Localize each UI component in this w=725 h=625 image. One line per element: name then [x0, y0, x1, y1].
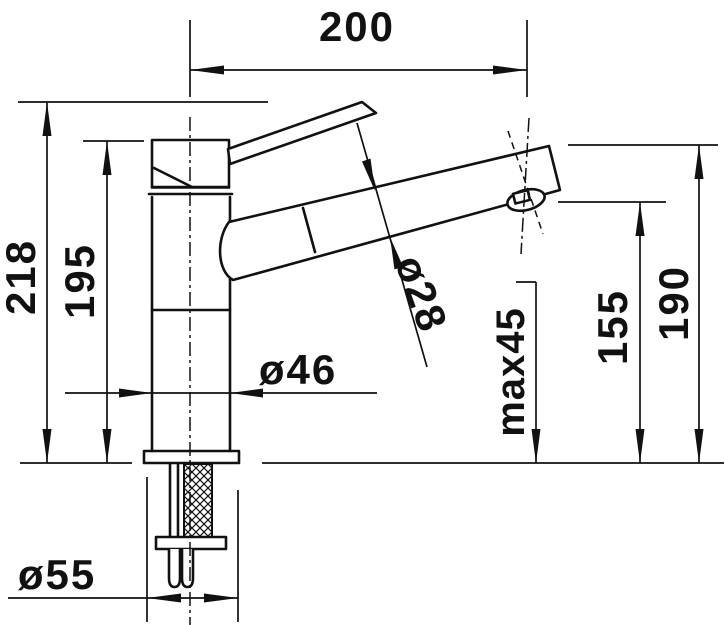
faucet-dimension-drawing: 200 218 195 ø46 ø28 max45 [0, 0, 725, 625]
dimension-body-diameter-46: ø46 [65, 346, 377, 398]
spout [220, 146, 560, 280]
dimension-reach-200: 200 [190, 3, 527, 97]
dim-label-max45: max45 [489, 307, 533, 437]
dimension-spout-diameter-28: ø28 [357, 123, 457, 367]
base-flange [144, 451, 239, 463]
hose-left [169, 549, 180, 587]
dim-label-28: ø28 [386, 249, 457, 339]
dim-label-195: 195 [56, 243, 103, 319]
faucet-body [152, 197, 230, 451]
dim-label-46: ø46 [259, 346, 337, 393]
dimension-max-mounting-45: max45 [489, 282, 541, 463]
mounting-washer [156, 537, 226, 549]
dim-label-200: 200 [319, 3, 395, 50]
hose-right [182, 549, 193, 587]
under-counter-assembly [156, 464, 226, 587]
dimension-body-height-195: 195 [56, 141, 144, 463]
dim-label-218: 218 [0, 239, 44, 315]
dim-label-55: ø55 [18, 551, 96, 598]
dim-label-190: 190 [650, 265, 697, 341]
technical-drawing-page: 200 218 195 ø46 ø28 max45 [0, 0, 725, 625]
lever-handle [228, 102, 376, 164]
threaded-stud [184, 464, 212, 537]
dim-label-155: 155 [589, 289, 636, 365]
aerator-detail [513, 190, 530, 203]
